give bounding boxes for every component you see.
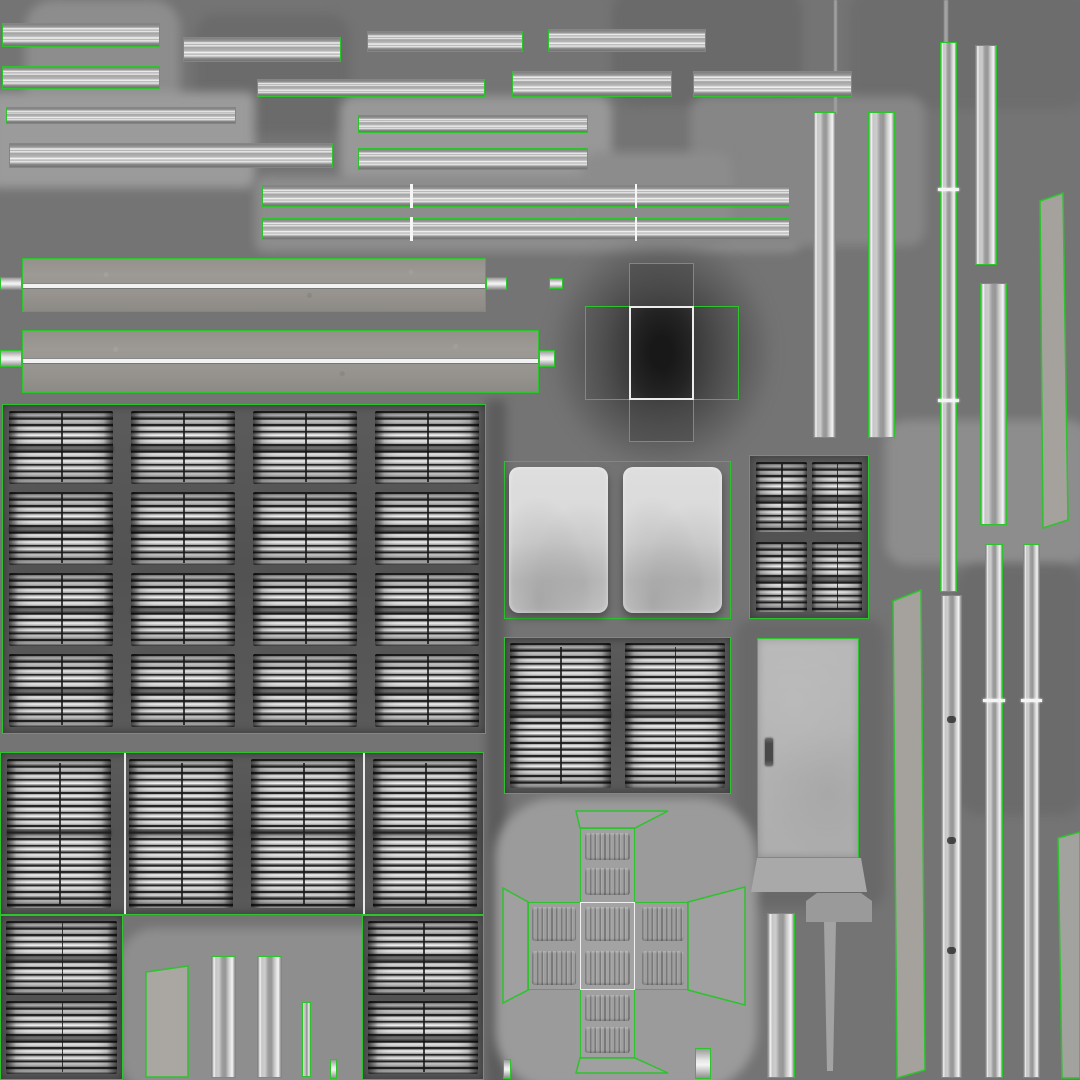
uv-island-small-bit xyxy=(503,1059,511,1079)
mast-cap xyxy=(806,893,872,922)
speckle-strip-right-upper xyxy=(1040,193,1068,528)
speckle-strip-bottom-left xyxy=(146,966,188,1077)
uv-island-small-bit xyxy=(695,1048,711,1079)
door-apron xyxy=(751,858,867,892)
cross-flap-bottom xyxy=(576,1058,668,1073)
speckle-strip-right-corner xyxy=(1058,832,1080,1078)
uv-island-small-bit xyxy=(330,1059,337,1079)
mast-stick xyxy=(824,922,836,1071)
uv-texture-atlas-canvas xyxy=(0,0,1080,1080)
cross-flap-top xyxy=(576,811,668,828)
speckle-strip-right-lower xyxy=(893,590,925,1078)
cross-flap-left xyxy=(503,888,528,1003)
uv-overlay-svg xyxy=(0,0,1080,1080)
cross-flap-right xyxy=(688,887,745,1005)
